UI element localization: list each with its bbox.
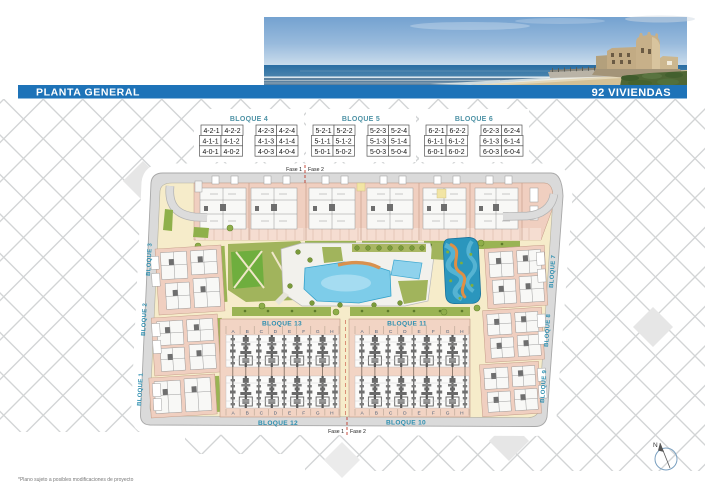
svg-text:4-1-1: 4-1-1 (202, 138, 218, 145)
svg-text:BLOQUE 12: BLOQUE 12 (258, 420, 298, 427)
svg-text:BLOQUE 4: BLOQUE 4 (230, 116, 268, 123)
svg-text:F: F (432, 411, 435, 417)
svg-text:4-0-4: 4-0-4 (279, 149, 295, 156)
svg-text:G: G (316, 411, 320, 417)
svg-text:E: E (288, 411, 291, 417)
svg-text:5-1-2: 5-1-2 (335, 138, 351, 145)
svg-text:F: F (432, 329, 435, 335)
svg-text:H: H (330, 329, 334, 335)
svg-text:5-1-1: 5-1-1 (314, 138, 330, 145)
svg-text:6-1-1: 6-1-1 (427, 138, 443, 145)
svg-text:BLOQUE 5: BLOQUE 5 (342, 116, 380, 123)
svg-text:C: C (260, 329, 264, 335)
svg-text:6-1-4: 6-1-4 (504, 138, 520, 145)
svg-text:H: H (330, 411, 334, 417)
svg-text:PLANTA GENERAL: PLANTA GENERAL (36, 87, 140, 99)
svg-text:4-2-3: 4-2-3 (258, 128, 274, 135)
svg-text:5-0-2: 5-0-2 (335, 149, 351, 156)
svg-text:BLOQUE 10: BLOQUE 10 (386, 419, 426, 426)
svg-text:4-0-1: 4-0-1 (202, 149, 218, 156)
svg-text:C: C (389, 329, 393, 335)
svg-text:G: G (446, 411, 450, 417)
svg-text:6-0-3: 6-0-3 (483, 149, 499, 156)
svg-text:92 VIVIENDAS: 92 VIVIENDAS (592, 87, 671, 99)
svg-text:B: B (246, 411, 249, 417)
svg-text:D: D (403, 329, 407, 335)
svg-text:5-2-3: 5-2-3 (370, 128, 386, 135)
svg-text:D: D (274, 329, 278, 335)
svg-text:E: E (288, 329, 291, 335)
svg-text:BLOQUE 6: BLOQUE 6 (455, 116, 493, 123)
svg-text:N: N (653, 442, 658, 449)
svg-text:5-1-3: 5-1-3 (370, 138, 386, 145)
svg-text:4-1-3: 4-1-3 (258, 138, 274, 145)
svg-text:4-0-3: 4-0-3 (258, 149, 274, 156)
svg-text:B: B (375, 411, 378, 417)
svg-text:C: C (389, 411, 393, 417)
svg-text:B: B (246, 329, 249, 335)
svg-text:6-0-2: 6-0-2 (448, 149, 464, 156)
svg-text:5-0-1: 5-0-1 (314, 149, 330, 156)
svg-text:D: D (274, 411, 278, 417)
svg-text:Fase 1: Fase 1 (286, 167, 302, 173)
svg-text:6-2-2: 6-2-2 (449, 128, 465, 135)
svg-text:4-2-1: 4-2-1 (203, 128, 219, 135)
svg-text:E: E (417, 329, 420, 335)
svg-text:4-1-2: 4-1-2 (223, 138, 239, 145)
svg-text:5-2-4: 5-2-4 (391, 128, 407, 135)
svg-text:5-1-4: 5-1-4 (391, 138, 407, 145)
svg-text:BLOQUE 13: BLOQUE 13 (262, 321, 302, 328)
svg-text:4-2-2: 4-2-2 (224, 128, 240, 135)
svg-text:G: G (316, 329, 320, 335)
svg-text:Fase 1: Fase 1 (328, 429, 344, 435)
svg-text:4-1-4: 4-1-4 (279, 138, 295, 145)
svg-text:6-0-1: 6-0-1 (427, 149, 443, 156)
svg-text:5-2-1: 5-2-1 (315, 128, 331, 135)
svg-text:*Plano sujeto a posibles modif: *Plano sujeto a posibles modificaciones … (18, 477, 134, 483)
svg-text:Fase 2: Fase 2 (350, 429, 366, 435)
svg-text:6-2-3: 6-2-3 (483, 128, 499, 135)
svg-text:6-2-1: 6-2-1 (428, 128, 444, 135)
svg-text:B: B (375, 329, 378, 335)
svg-text:6-1-2: 6-1-2 (448, 138, 464, 145)
svg-text:G: G (446, 329, 450, 335)
svg-text:5-0-4: 5-0-4 (391, 149, 407, 156)
svg-text:H: H (460, 411, 464, 417)
svg-text:BLOQUE 11: BLOQUE 11 (387, 321, 427, 328)
svg-text:C: C (260, 411, 264, 417)
svg-text:F: F (302, 411, 305, 417)
svg-text:H: H (460, 329, 464, 335)
svg-text:E: E (417, 411, 420, 417)
svg-text:5-2-2: 5-2-2 (336, 128, 352, 135)
svg-text:D: D (403, 411, 407, 417)
svg-text:6-2-4: 6-2-4 (504, 128, 520, 135)
svg-text:5-0-3: 5-0-3 (370, 149, 386, 156)
svg-text:6-0-4: 6-0-4 (504, 149, 520, 156)
svg-text:6-1-3: 6-1-3 (483, 138, 499, 145)
svg-text:F: F (302, 329, 305, 335)
svg-text:4-2-4: 4-2-4 (279, 128, 295, 135)
svg-text:4-0-2: 4-0-2 (223, 149, 239, 156)
svg-text:Fase 2: Fase 2 (308, 167, 324, 173)
